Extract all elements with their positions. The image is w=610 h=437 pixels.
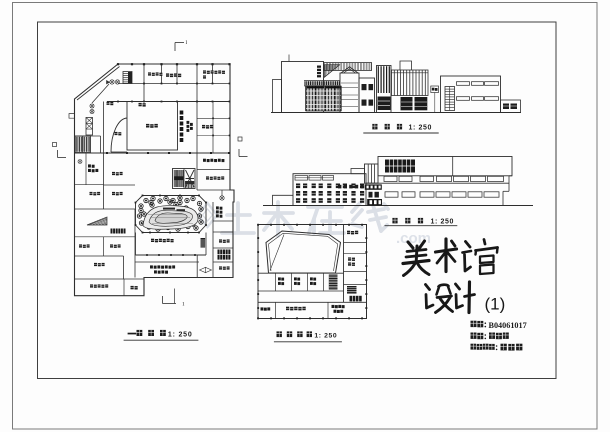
svg-text:(1): (1) (485, 295, 506, 314)
svg-text:1: 1 (182, 302, 185, 308)
svg-text:B04061017: B04061017 (489, 321, 527, 330)
svg-text:1: 250: 1: 250 (431, 219, 454, 226)
svg-text:1: 250: 1: 250 (168, 331, 193, 338)
svg-text:1: 250: 1: 250 (314, 332, 337, 339)
svg-text:.com: .com (396, 230, 431, 247)
svg-text:1: 250: 1: 250 (409, 125, 432, 132)
